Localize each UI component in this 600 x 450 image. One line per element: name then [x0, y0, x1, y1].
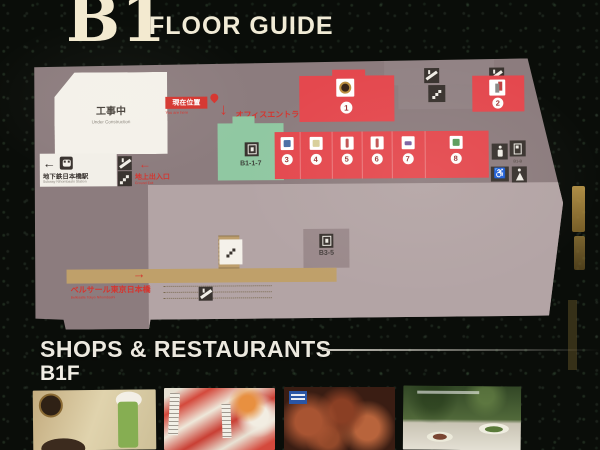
grill-logo-icon [289, 391, 307, 404]
left-arrow-icon: ← [139, 158, 151, 170]
subway-label-en: Subway Nihombashi Station [43, 179, 87, 183]
shop-logo [401, 136, 414, 149]
shop-logo [489, 80, 505, 96]
heading-rule [322, 349, 600, 351]
light-reflection [572, 186, 585, 232]
shops-restaurants-heading: SHOPS & RESTAURANTS [40, 336, 332, 363]
elevator-block: B3-5 [303, 229, 349, 268]
elevator-icon [319, 234, 333, 248]
stairs-icon [118, 171, 132, 186]
stairs-icon [219, 239, 242, 264]
unit-number-badge: 6 [371, 153, 382, 164]
bellesalle-label-jp: ベルサール東京日本橋 [71, 284, 151, 296]
page-title: FLOOR GUIDE [149, 12, 334, 41]
shop-unit-5: 5 [334, 137, 360, 165]
cafe-logo-icon [39, 393, 63, 417]
unit-number-badge: 1 [340, 102, 352, 114]
unit-number-badge: 2 [492, 98, 503, 109]
current-location-badge: 現在位置 [165, 97, 207, 109]
shop-unit-7: 7 [395, 136, 421, 164]
escalator-icon [118, 156, 132, 170]
elevator-label: B3-5 [319, 250, 334, 257]
restaurant-photo-terrace [403, 385, 522, 450]
construction-label-en: Under Construction [92, 119, 131, 124]
right-arrow-icon: → [133, 267, 146, 280]
unit-number-badge: 5 [341, 154, 352, 165]
shop-logo [309, 137, 322, 150]
shop-unit-8: 8 [443, 136, 469, 164]
coffee-shop-logo-icon [339, 82, 351, 94]
shop-unit-6: 6 [364, 136, 390, 164]
shop-logo [336, 79, 354, 97]
ground-exit-label-en: Ground Exit [135, 181, 154, 185]
restroom-area-label: B1-B [510, 158, 526, 163]
womens-restroom-icon [512, 166, 527, 182]
unit-number-badge: 7 [402, 153, 413, 164]
floor-map-panel: 工事中 Under Construction 現在位置 You are here… [32, 58, 564, 330]
shop-logo [340, 137, 353, 150]
light-reflection [574, 236, 585, 270]
under-construction-area: 工事中 Under Construction [54, 72, 168, 155]
train-icon [60, 157, 73, 170]
floor-guide-sign-photo: B1 FLOOR GUIDE 工事中 Under Construction 現在… [0, 0, 600, 450]
shop-logo-icon [495, 83, 499, 92]
current-location-label-en: You are here [165, 110, 188, 115]
restaurant-photo-sashimi [164, 388, 275, 450]
shop-unit-3: 3 [274, 137, 300, 165]
light-reflection [568, 300, 577, 370]
unit-number-badge: 3 [281, 154, 292, 165]
vending-machine-icon [510, 140, 526, 156]
shop-logo [370, 136, 383, 149]
unit-number-badge: 8 [450, 153, 461, 164]
shop-logo [280, 137, 293, 150]
elevator-icon [245, 142, 259, 156]
corridor [67, 268, 337, 284]
escalator-icon [199, 287, 213, 301]
shop-band: 3 4 5 6 7 8 [275, 131, 489, 179]
stairs-icon [428, 85, 445, 102]
construction-label-jp: 工事中 [96, 102, 126, 117]
left-arrow-icon: ← [43, 156, 56, 171]
unit-number-badge: 4 [310, 154, 321, 165]
bellesalle-label-en: Bellesalle Tokyo Nihombashi [71, 295, 116, 299]
down-arrow-icon: ↓ [219, 102, 227, 118]
subway-direction-sign: ← 地下鉄日本橋駅 Subway Nihombashi Station [40, 153, 117, 187]
wheelchair-access-icon: ♿ [491, 167, 509, 182]
shop-logo [449, 136, 462, 149]
shop-unit-4: 4 [303, 137, 329, 165]
restaurant-photo-cafe [33, 389, 157, 450]
escalator-icon [424, 68, 439, 83]
shop-unit-1: 1 [299, 75, 394, 122]
map-lower-area [148, 182, 564, 329]
shop-unit-2: 2 [472, 75, 524, 111]
mens-restroom-icon [492, 144, 508, 160]
restaurant-photo-grill [284, 387, 395, 450]
walkway-dotted-lines [164, 284, 272, 301]
floor-label: B1F [40, 362, 80, 386]
location-pin-icon [209, 92, 220, 103]
